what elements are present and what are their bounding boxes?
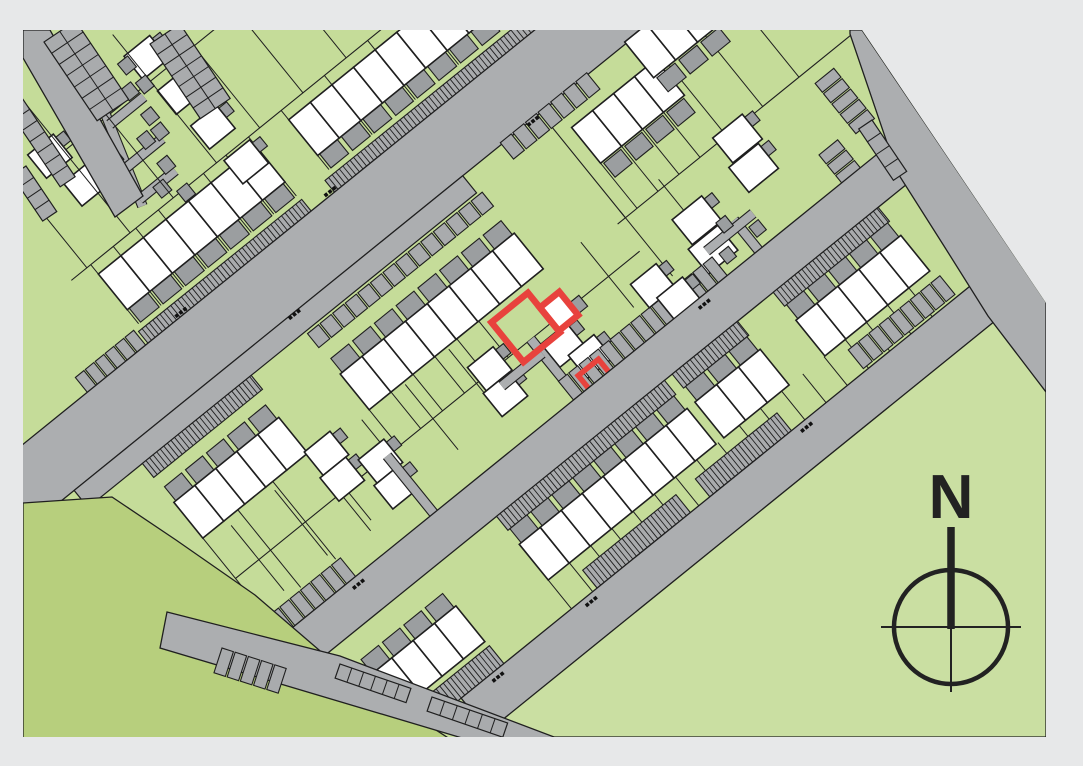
svg-text:N: N	[929, 463, 974, 532]
